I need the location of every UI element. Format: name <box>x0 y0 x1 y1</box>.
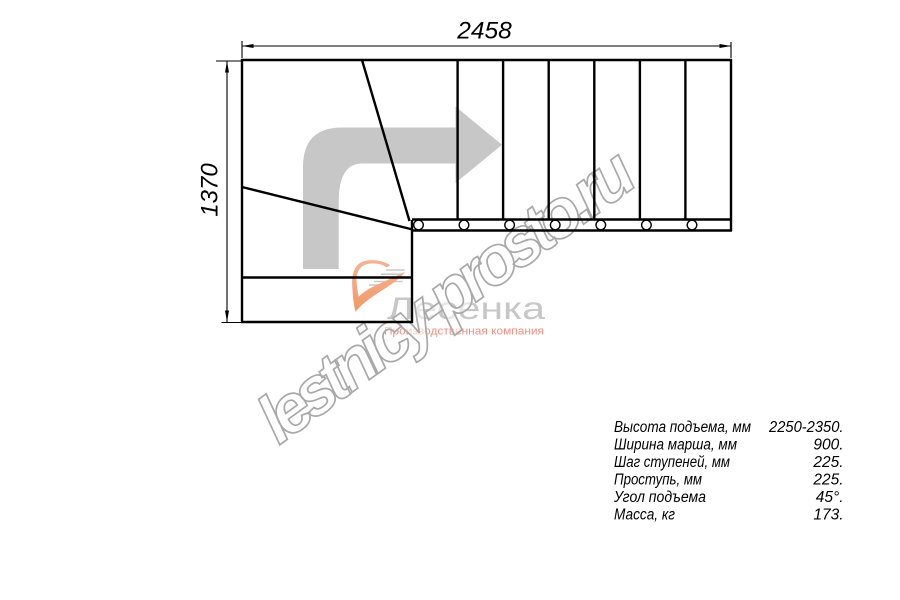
svg-text:Масса, кг: Масса, кг <box>614 507 675 524</box>
svg-text:Угол подъема: Угол подъема <box>613 489 706 506</box>
svg-text:Высота подъема, мм: Высота подъема, мм <box>614 419 751 436</box>
svg-text:Проступь, мм: Проступь, мм <box>614 472 702 489</box>
svg-text:225.: 225. <box>812 472 843 489</box>
svg-text:45°.: 45°. <box>816 489 844 506</box>
svg-text:1370: 1370 <box>197 163 224 217</box>
svg-text:173.: 173. <box>813 507 843 524</box>
svg-text:900.: 900. <box>813 437 843 454</box>
svg-text:225.: 225. <box>812 454 843 471</box>
svg-text:2458: 2458 <box>456 18 512 45</box>
svg-text:Шаг ступеней, мм: Шаг ступеней, мм <box>614 454 730 471</box>
svg-text:Ширина марша, мм: Ширина марша, мм <box>614 437 737 454</box>
svg-text:2250-2350.: 2250-2350. <box>768 419 843 436</box>
